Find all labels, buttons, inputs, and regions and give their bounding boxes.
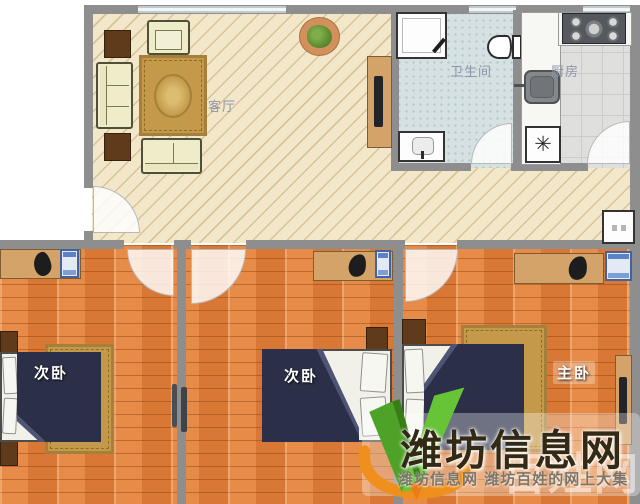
kitchen-label: 厨房	[551, 61, 579, 80]
living-room-label: 客厅	[208, 96, 236, 115]
bed-pillow	[2, 357, 18, 395]
wall-bedrooms-top-a	[0, 240, 124, 249]
kitchen-faucet	[514, 84, 526, 87]
bedroom-middle-label: 次卧	[284, 365, 318, 386]
computer-bedroom-master	[605, 251, 632, 281]
watermark-tagline: 潍坊信息网 潍坊百姓的网上大集	[398, 468, 628, 489]
wall-bedrooms-top-b	[174, 240, 191, 249]
tv-living	[374, 76, 383, 127]
rug-medallion	[154, 74, 192, 118]
living-room-floor	[92, 10, 394, 243]
side-table-bottom	[104, 133, 131, 161]
bedroom-left-label: 次卧	[34, 362, 68, 383]
toilet-bowl	[487, 35, 512, 59]
bed-pillow	[2, 398, 18, 435]
sink-tap	[421, 151, 424, 159]
desk-bedroom-master	[514, 253, 604, 284]
bathroom-sink	[398, 131, 445, 162]
floor-plan: 客厅 卫生间 ✳ 厨房 次卧	[0, 0, 640, 504]
side-table-top	[104, 30, 131, 58]
living-room-window	[138, 6, 286, 13]
bedroom-master-label: 主卧	[553, 361, 595, 384]
armchair-seat	[155, 30, 182, 50]
sofa-cushion-line	[106, 85, 129, 86]
living-room-rug	[139, 55, 207, 136]
wall-bathroom-kitchen	[513, 10, 521, 166]
bathroom-label: 卫生间	[450, 61, 492, 80]
bed-bedroom-left: 次卧	[0, 352, 101, 442]
potted-plant	[299, 17, 340, 56]
nightstand-middle	[366, 327, 388, 350]
wall-bedrooms-top-c	[246, 240, 405, 249]
armchair	[147, 20, 190, 55]
sofa-two-seat	[141, 138, 202, 174]
computer-bedroom-left	[60, 249, 79, 278]
gas-stove	[562, 13, 626, 44]
wall-bathroom-bottom	[391, 163, 471, 171]
sofa-cushion-line	[173, 143, 174, 164]
wall-bedroom1-bedroom2	[177, 249, 186, 504]
hallway-cabinet	[602, 210, 635, 244]
washing-machine-icon: ✳	[534, 134, 552, 155]
hallway-floor	[394, 166, 634, 243]
wall-left-upper	[84, 5, 93, 188]
sofa-backrest	[100, 66, 107, 125]
door-handle	[172, 384, 177, 427]
cabinet-marks	[612, 225, 617, 231]
sofa-cushion-line	[106, 106, 129, 107]
washing-machine: ✳	[525, 126, 561, 163]
computer-bedroom-middle	[375, 250, 391, 278]
shower	[396, 12, 447, 59]
sofa-three-seat	[96, 62, 133, 129]
bathroom-window	[469, 6, 516, 13]
toilet	[487, 35, 522, 59]
plant-leaves	[307, 25, 332, 48]
door-handle	[181, 387, 187, 432]
sofa-backrest	[145, 163, 198, 170]
